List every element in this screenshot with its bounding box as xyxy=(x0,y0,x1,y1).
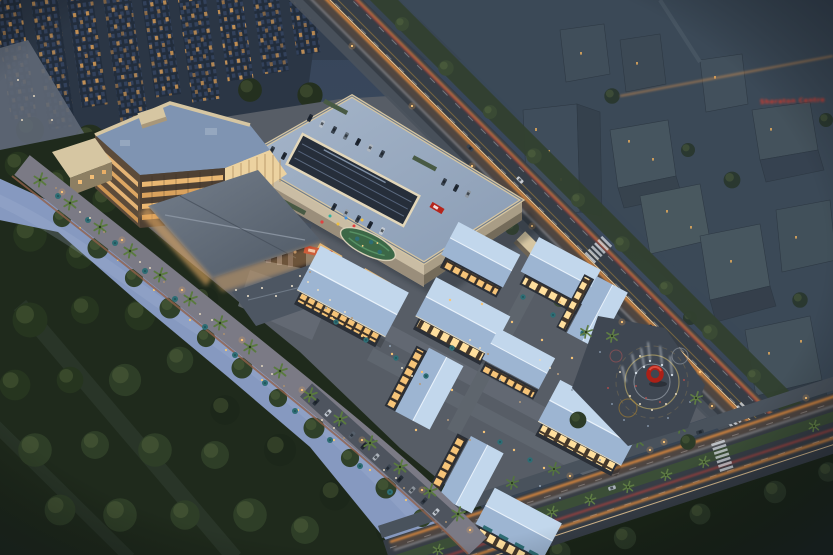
aerial-rendering-stage: Sheraton Centre xyxy=(0,0,833,555)
vignette-overlay xyxy=(0,0,833,555)
scene-root: Sheraton Centre xyxy=(0,0,833,555)
